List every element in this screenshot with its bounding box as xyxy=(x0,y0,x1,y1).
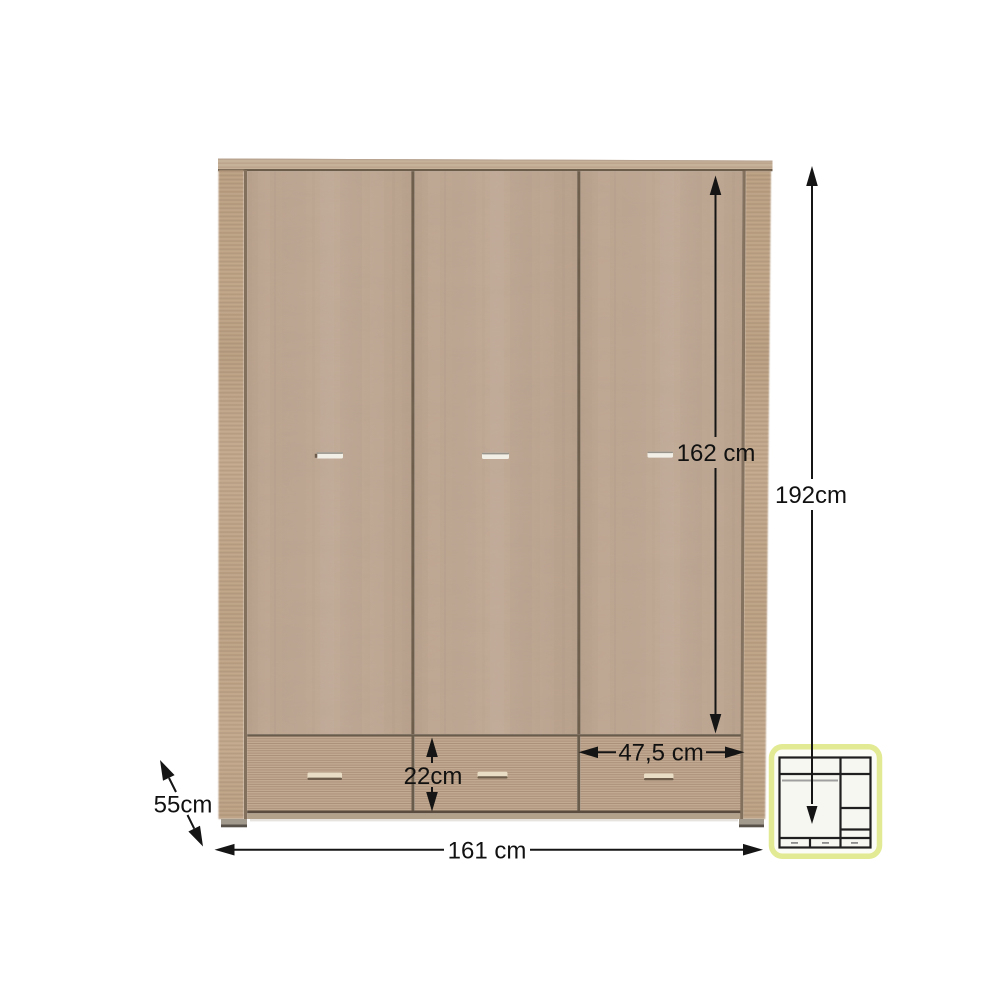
svg-text:55cm: 55cm xyxy=(154,792,213,819)
svg-text:192cm: 192cm xyxy=(775,482,847,509)
svg-text:47,5 cm: 47,5 cm xyxy=(618,740,703,767)
svg-text:162 cm: 162 cm xyxy=(677,440,756,467)
svg-text:22cm: 22cm xyxy=(404,763,463,790)
svg-text:161 cm: 161 cm xyxy=(448,838,527,865)
